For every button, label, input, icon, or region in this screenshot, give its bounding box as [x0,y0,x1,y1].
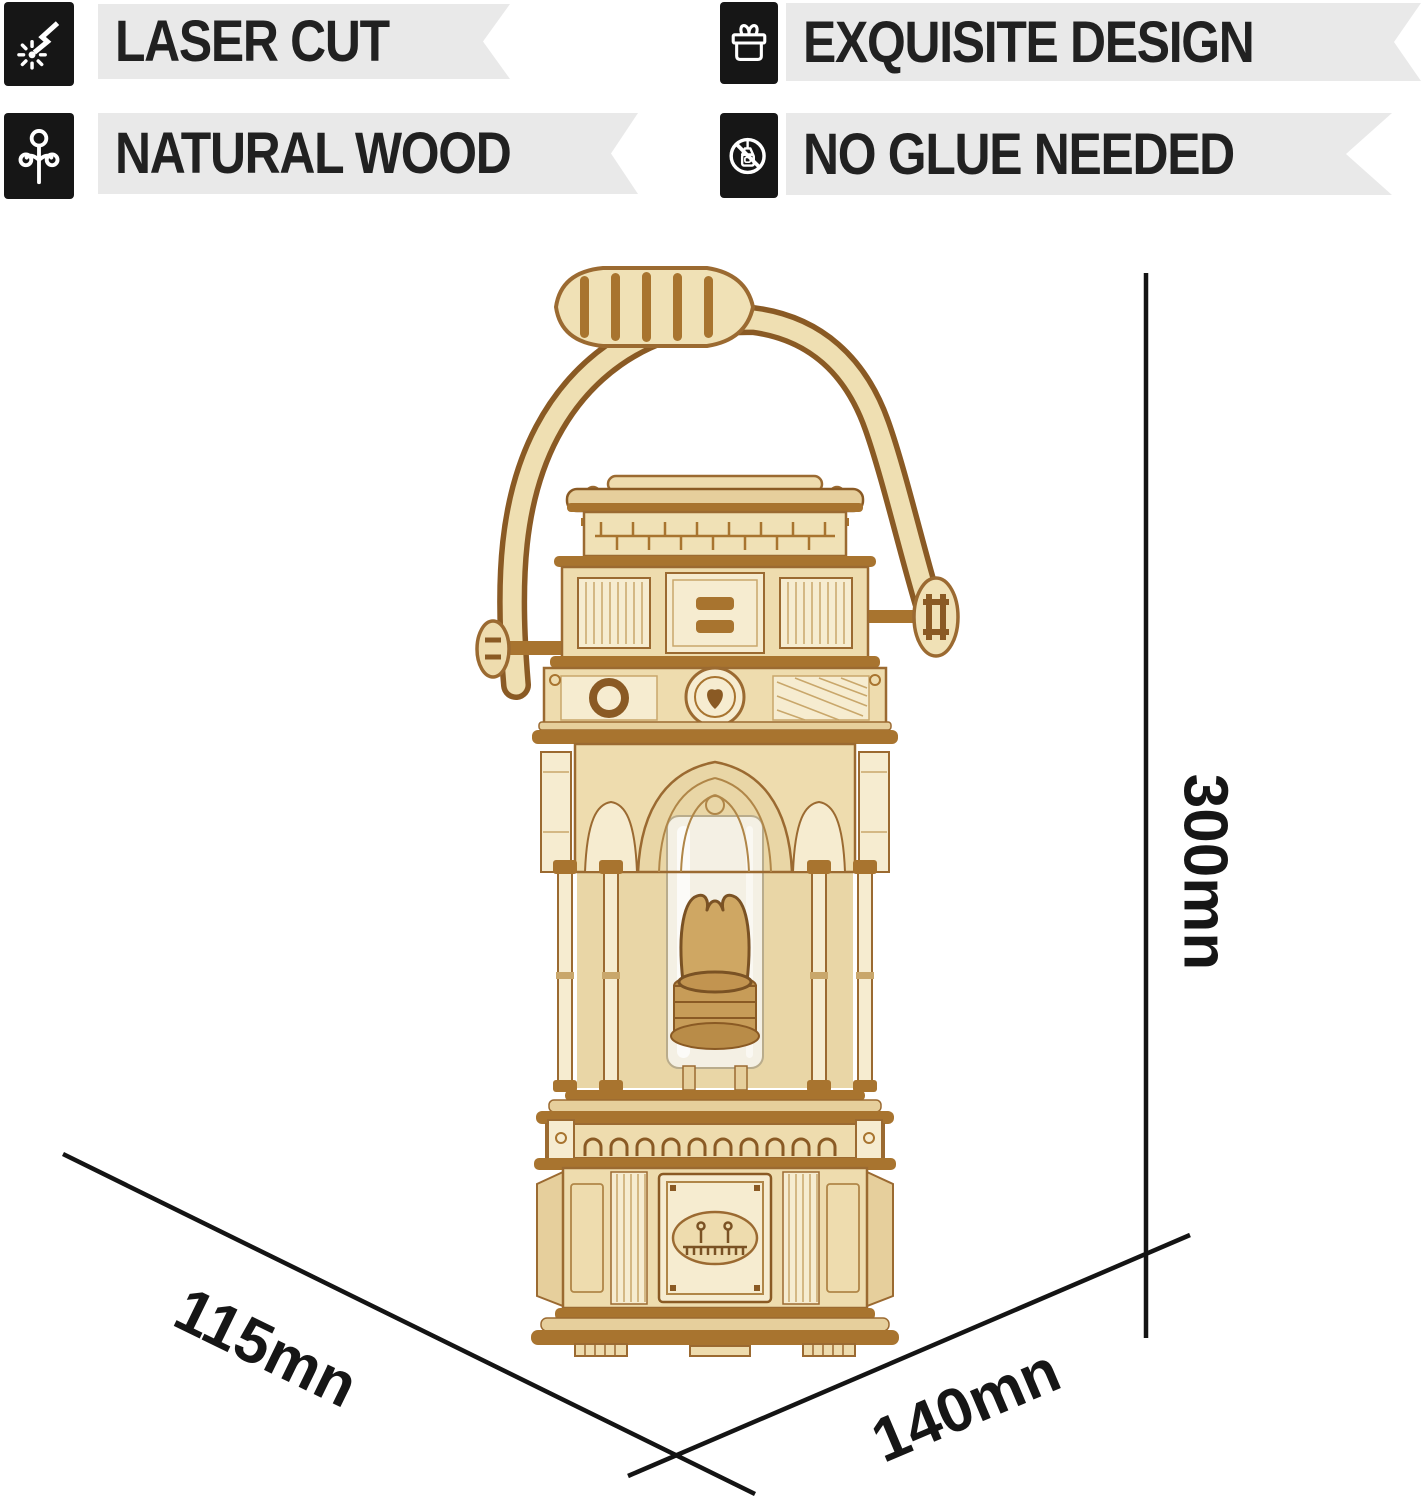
product-marketing-image: LASER CUT NATURAL WOOD [0,0,1421,1496]
height-dimension-label: 300mn [1170,774,1241,970]
depth-dimension-line [63,1154,755,1494]
dimension-lines [0,0,1421,1496]
